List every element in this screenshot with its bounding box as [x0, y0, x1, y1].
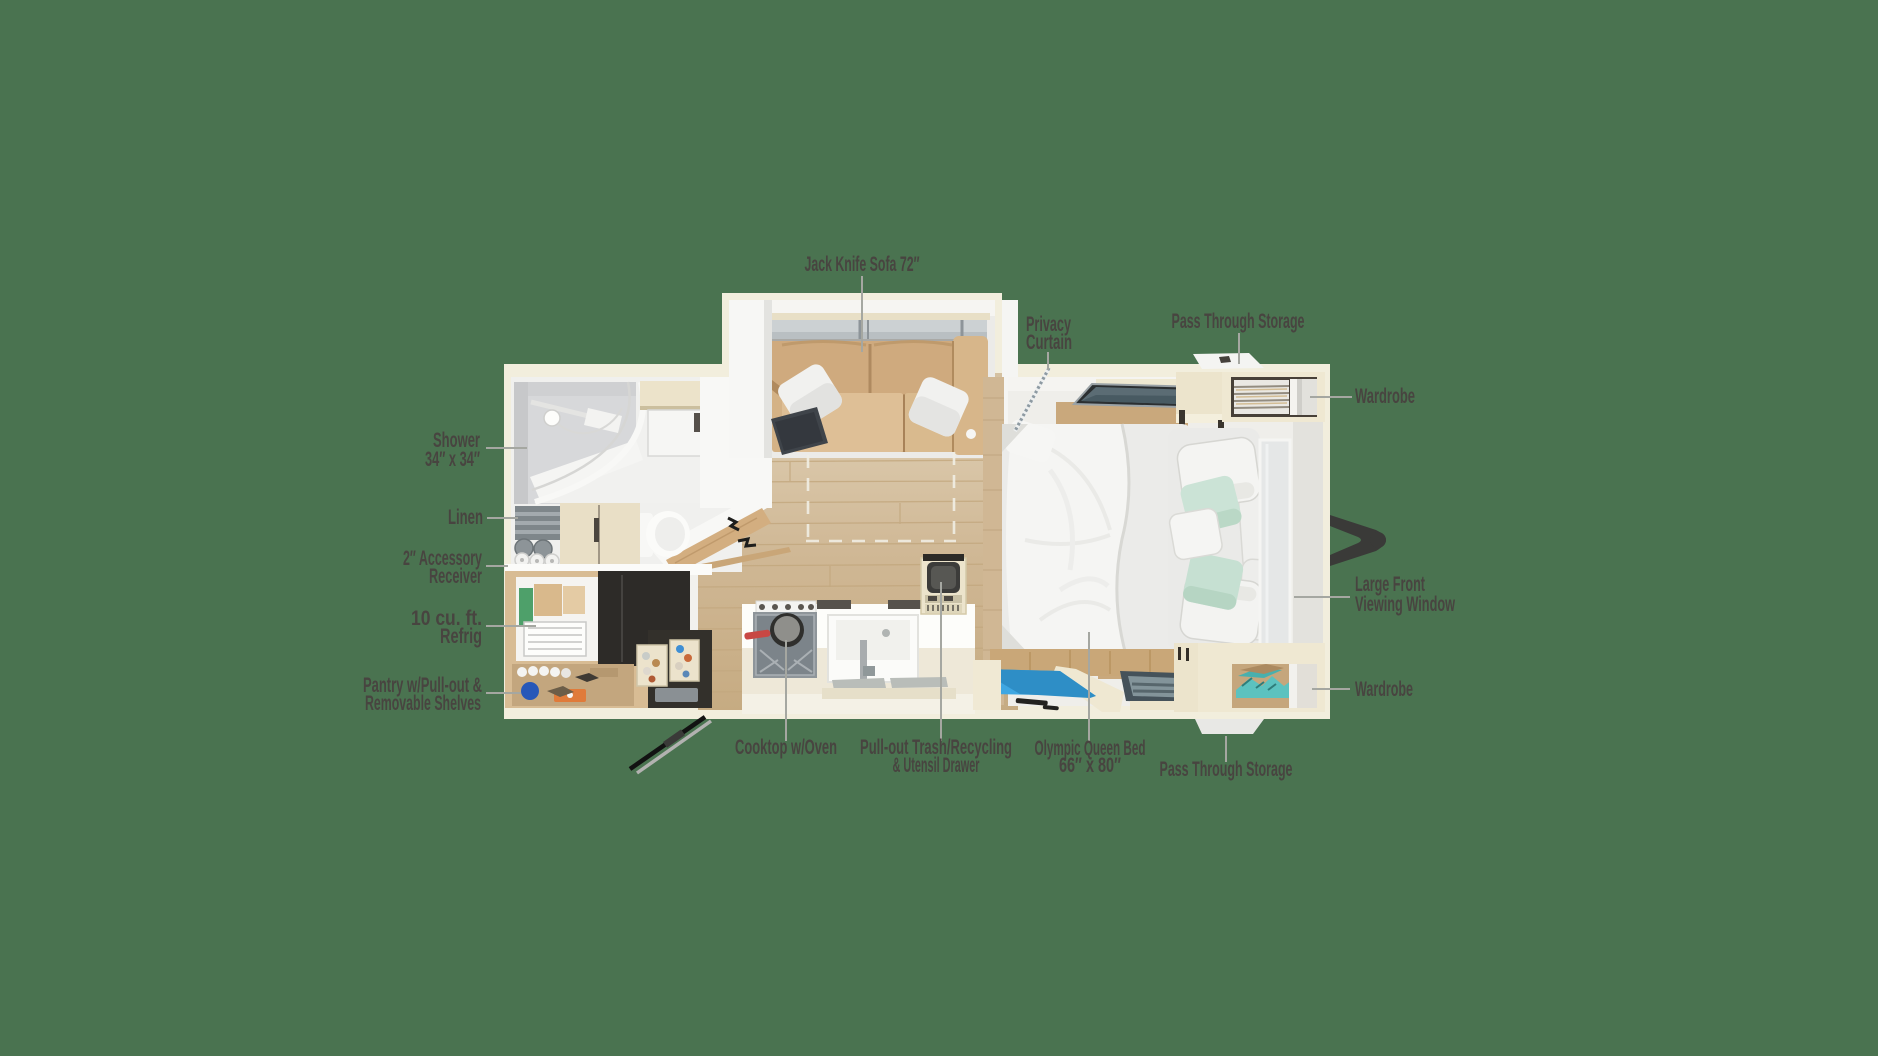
- svg-text:Wardrobe: Wardrobe: [1355, 385, 1415, 408]
- svg-text:Pass Through Storage: Pass Through Storage: [1172, 310, 1305, 333]
- svg-text:Refrig: Refrig: [440, 625, 482, 648]
- svg-text:66″ x 80″: 66″ x 80″: [1059, 754, 1121, 777]
- svg-text:Removable Shelves: Removable Shelves: [365, 692, 481, 715]
- svg-text:Wardrobe: Wardrobe: [1355, 678, 1413, 701]
- svg-text:Jack Knife Sofa 72″: Jack Knife Sofa 72″: [805, 253, 920, 276]
- svg-text:Linen: Linen: [448, 506, 483, 529]
- svg-text:& Utensil Drawer: & Utensil Drawer: [893, 754, 980, 777]
- svg-text:Cooktop w/Oven: Cooktop w/Oven: [735, 736, 837, 759]
- svg-text:Receiver: Receiver: [429, 565, 482, 588]
- svg-text:Viewing Window: Viewing Window: [1355, 593, 1455, 616]
- svg-text:Curtain: Curtain: [1026, 331, 1072, 354]
- svg-text:34″ x 34″: 34″ x 34″: [425, 448, 480, 471]
- svg-text:Pass Through Storage: Pass Through Storage: [1160, 758, 1293, 781]
